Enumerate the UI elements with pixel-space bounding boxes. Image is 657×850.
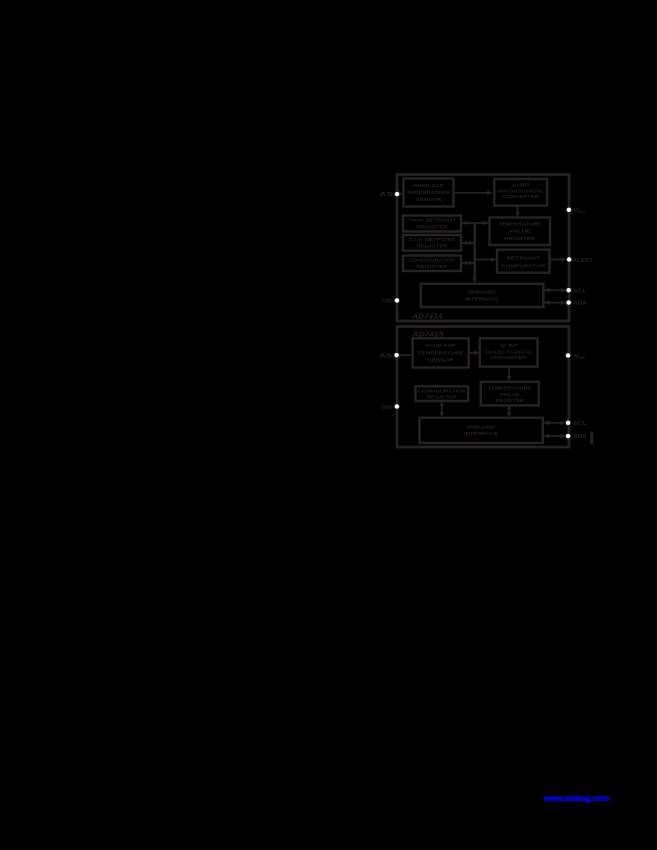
svg-text:BAND GAP: BAND GAP (414, 183, 444, 188)
svg-text:VALUE: VALUE (509, 229, 532, 235)
svg-text:VDD: VDD (574, 208, 586, 214)
svg-text:CONVERTER: CONVERTER (503, 194, 540, 199)
svg-text:THIGH SETPOINT: THIGH SETPOINT (408, 218, 457, 223)
svg-text:REGISTER: REGISTER (496, 398, 525, 403)
svg-text:SDA: SDA (574, 434, 587, 440)
svg-text:SMBus/I2C: SMBus/I2C (468, 290, 498, 296)
svg-text:REGISTER: REGISTER (504, 236, 536, 242)
svg-text:TEMPERATURE: TEMPERATURE (407, 190, 451, 195)
svg-text:GND: GND (382, 298, 393, 304)
svg-text:REGISTER: REGISTER (427, 395, 457, 400)
svg-text:SENSOR: SENSOR (416, 197, 443, 202)
svg-text:SDA: SDA (574, 301, 587, 307)
svg-text:TEMPERATURE: TEMPERATURE (499, 222, 542, 228)
svg-text:TEMPERATURE: TEMPERATURE (488, 386, 532, 391)
svg-text:AD7414: AD7414 (411, 314, 443, 321)
svg-text:INTERFACE: INTERFACE (465, 296, 500, 302)
svg-text:GND: GND (382, 405, 393, 411)
svg-text:REGISTER: REGISTER (417, 264, 448, 269)
svg-text:ALERT: ALERT (573, 258, 593, 264)
svg-text:www.analog.com: www.analog.com (543, 793, 610, 803)
svg-text:INTERFACE: INTERFACE (464, 431, 499, 437)
svg-text:REGISTER: REGISTER (417, 244, 448, 249)
svg-text:AS: AS (379, 354, 393, 360)
svg-text:TLOW SETPOINT: TLOW SETPOINT (408, 237, 457, 242)
svg-text:SENSOR: SENSOR (428, 358, 455, 363)
svg-text:SMBus/I2C: SMBus/I2C (467, 425, 497, 431)
svg-text:AS: AS (380, 192, 394, 198)
svg-text:10-BIT: 10-BIT (499, 343, 518, 348)
svg-text:SCL: SCL (574, 421, 587, 427)
svg-text:COMPARATOR: COMPARATOR (501, 263, 546, 268)
svg-text:TEMPERATURE: TEMPERATURE (418, 351, 464, 356)
svg-text:VALUE: VALUE (500, 392, 520, 397)
svg-text:REGISTER: REGISTER (417, 224, 448, 229)
svg-text:SCL: SCL (574, 288, 587, 294)
svg-text:CONVERTER: CONVERTER (491, 355, 528, 360)
svg-text:ANALOG-TO-DIGITAL: ANALOG-TO-DIGITAL (485, 349, 533, 354)
svg-text:VDD: VDD (574, 354, 586, 360)
svg-text:CONFIGURATION: CONFIGURATION (418, 388, 466, 393)
svg-text:SETPOINT: SETPOINT (506, 255, 540, 260)
svg-text:10-BIT: 10-BIT (511, 183, 530, 188)
svg-text:CONFIGURATION: CONFIGURATION (409, 258, 455, 263)
svg-text:BAND GAP: BAND GAP (426, 343, 456, 348)
